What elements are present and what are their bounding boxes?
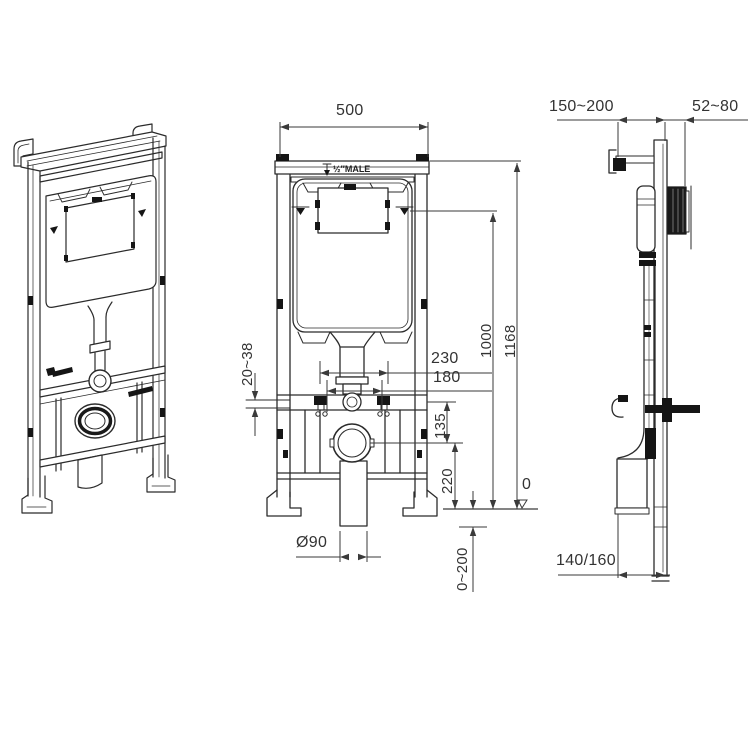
dim-frame-height: 1168 <box>503 325 519 358</box>
technical-drawing <box>0 0 750 750</box>
dim-frame-width: 500 <box>336 103 364 119</box>
side-view <box>609 140 700 581</box>
dim-outlet-offset: 135 <box>433 413 449 439</box>
dim-wall-bracket-range: 150~200 <box>549 99 614 115</box>
dim-outlet-height: 220 <box>440 468 456 494</box>
dim-floor-datum: 0 <box>522 477 531 493</box>
front-view <box>246 154 437 526</box>
dim-below-floor-adjust: 0~200 <box>455 547 471 591</box>
iso-anchor-right <box>128 386 153 397</box>
iso-post-left <box>28 162 40 497</box>
front-access-panel <box>318 188 388 233</box>
iso-drain-pipe <box>78 455 102 488</box>
side-outlet-pipe <box>617 459 647 508</box>
dim-drain-diameter: Ø90 <box>296 535 327 551</box>
front-foot-left <box>267 490 301 516</box>
iso-foot-right <box>147 455 175 492</box>
iso-view <box>14 124 175 513</box>
dim-water-inlet: ½″MALE <box>333 161 370 177</box>
dim-bracket-adjust: 20~38 <box>240 342 256 386</box>
flush-connection <box>343 393 361 411</box>
side-anchor-rod <box>645 405 700 413</box>
waste-outlet <box>333 424 371 462</box>
iso-anchor-left <box>46 367 73 377</box>
side-flush-plate <box>668 186 691 249</box>
dim-plate-depth-range: 52~80 <box>692 99 738 115</box>
technical-drawing-canvas: 500 ½″MALE 230 180 20~38 1000 1168 135 2… <box>0 0 750 750</box>
iso-foot-left <box>22 476 52 513</box>
side-rail <box>654 140 667 576</box>
dim-bolt-span-inner: 180 <box>433 370 461 386</box>
dim-frame-depth: 140/160 <box>556 553 616 569</box>
dim-flush-level-height: 1000 <box>479 323 495 358</box>
side-cistern <box>637 186 655 252</box>
dim-bolt-span-outer: 230 <box>431 351 459 367</box>
front-foot-right <box>403 490 437 516</box>
drain-pipe <box>340 461 367 526</box>
